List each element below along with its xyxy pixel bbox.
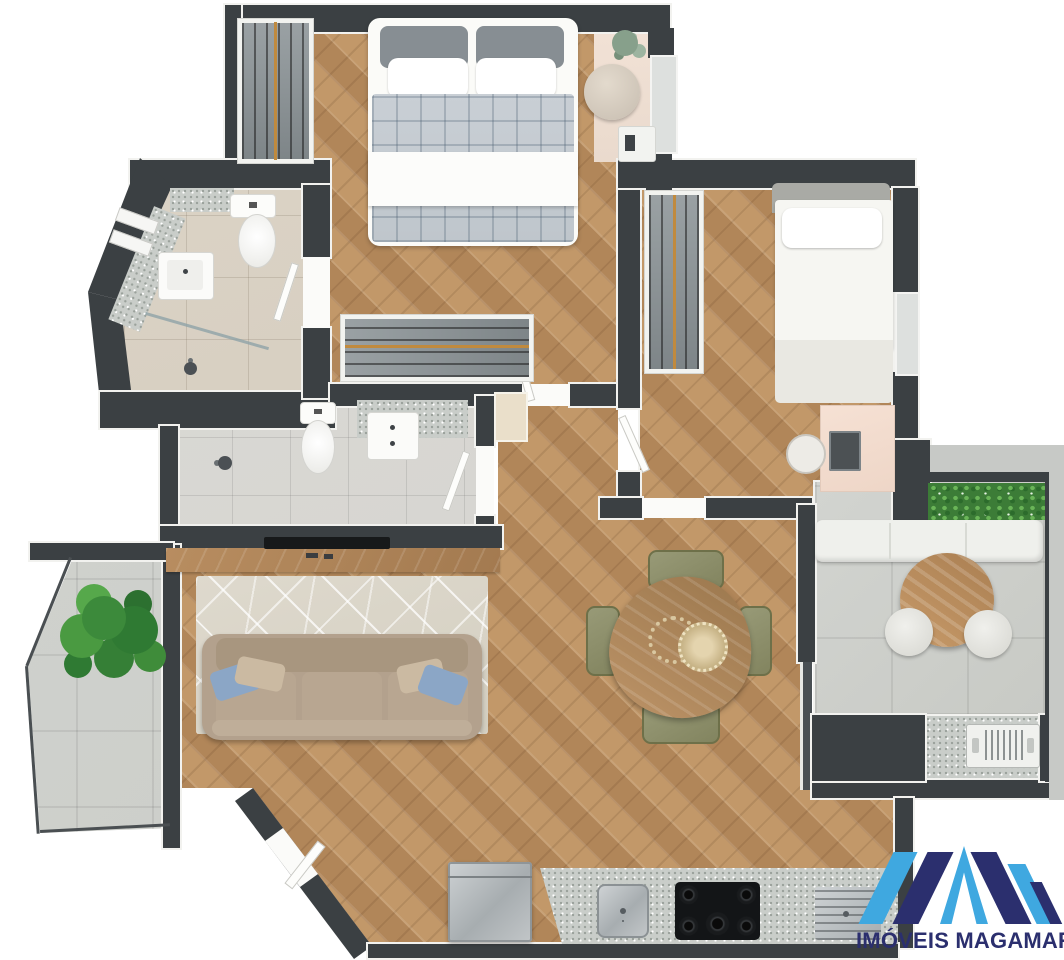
fridge-door-gap <box>448 876 532 878</box>
sofa <box>202 634 482 740</box>
master-lowboard <box>340 314 534 382</box>
wall-bedroom2-right-upper <box>893 188 918 292</box>
wall-bathroom1-right-upper <box>303 185 330 257</box>
wardrobe-rod <box>673 195 676 370</box>
remote-control <box>324 554 333 559</box>
bench-seam <box>889 523 891 559</box>
wall-bedroom2-bottom-left <box>600 498 642 518</box>
wardrobe-hangers <box>345 319 529 377</box>
pouf <box>584 64 640 120</box>
bathroom2-door-opening <box>476 446 494 516</box>
faucet <box>183 269 188 274</box>
bench-seam <box>965 523 967 559</box>
pillow <box>782 208 882 248</box>
terrace-top-ledge <box>930 445 1064 472</box>
wall-balcony-top <box>30 543 173 560</box>
bedroom2-wardrobe <box>644 190 704 374</box>
wall-kitchen-bottom <box>368 944 898 958</box>
wardrobe-rod <box>345 345 529 348</box>
faucet <box>620 908 626 914</box>
potted-plant <box>612 30 638 56</box>
desk <box>820 405 895 492</box>
brand-logo: IMÓVEIS MAGAMAR <box>856 844 1064 956</box>
wall-master-window-jamb-top <box>648 28 674 58</box>
wall-niche-left-block <box>812 715 925 781</box>
wall-bathroom2-right-upper <box>476 396 494 446</box>
wall-bedroom2-left-upper <box>618 160 640 408</box>
bedroom2-window <box>895 292 920 376</box>
ac-cap <box>1027 738 1034 753</box>
remote-control <box>306 553 318 558</box>
terrace-stool <box>964 610 1012 658</box>
basin <box>167 260 203 290</box>
wall-living-left <box>163 545 180 848</box>
gas-cooktop <box>675 882 760 940</box>
hall-cabinet <box>494 392 528 442</box>
nightstand <box>618 126 656 162</box>
bedroom2-door-opening <box>642 498 706 518</box>
desk-chair <box>786 434 826 474</box>
sofa-front-edge <box>212 720 472 736</box>
wall-bedroom2-bottom-right <box>706 498 812 518</box>
book <box>625 135 635 151</box>
table-centerpiece-plate <box>678 622 728 672</box>
bathroom1-speckle-strip <box>170 188 234 212</box>
wall-terrace-bottom <box>812 780 1056 798</box>
shower-head <box>184 362 197 375</box>
tv-console <box>166 548 500 572</box>
wall-terrace-left <box>798 505 815 662</box>
pillow <box>388 58 468 98</box>
faucet <box>390 441 395 446</box>
fridge <box>448 862 532 942</box>
toilet-bowl <box>301 420 335 474</box>
flush-button <box>249 202 257 208</box>
wall-bathroom1-right-lower <box>303 328 330 398</box>
ac-cap <box>972 738 979 753</box>
laptop <box>829 431 861 471</box>
bed-runner <box>368 152 578 206</box>
logo-mark <box>870 846 1050 926</box>
pillow <box>476 58 556 98</box>
terrace-right-ledge <box>1049 445 1064 800</box>
flush-button <box>314 409 322 414</box>
wall-bathroom2-left <box>160 426 178 528</box>
planter-hedge <box>928 483 1045 520</box>
bathroom1-door-opening <box>303 257 330 328</box>
ac-grille <box>985 730 1023 760</box>
sheet <box>775 340 893 403</box>
washbasin <box>158 252 214 300</box>
terrace-stool <box>885 608 933 656</box>
oven-handle <box>843 911 849 917</box>
tv <box>264 537 390 549</box>
shower-head <box>218 456 232 470</box>
wall-corner-block-terrace <box>893 440 930 520</box>
wall-terrace-top <box>930 472 1052 482</box>
double-bed <box>368 18 578 246</box>
single-bed <box>772 183 893 403</box>
kitchen-sink <box>597 884 649 938</box>
faucet <box>390 425 395 430</box>
wardrobe-rod <box>274 22 277 160</box>
balcony-plant <box>82 596 126 640</box>
toilet-bowl <box>238 214 276 268</box>
terrace-glass-railing <box>1045 478 1049 782</box>
master-wardrobe <box>237 18 314 164</box>
floor-plan-render: IMÓVEIS MAGAMAR <box>0 0 1064 960</box>
air-conditioner-unit <box>966 724 1040 768</box>
washbasin <box>367 412 419 460</box>
terrace-sliding-door <box>800 662 812 790</box>
logo-text: IMÓVEIS MAGAMAR <box>856 928 1064 954</box>
